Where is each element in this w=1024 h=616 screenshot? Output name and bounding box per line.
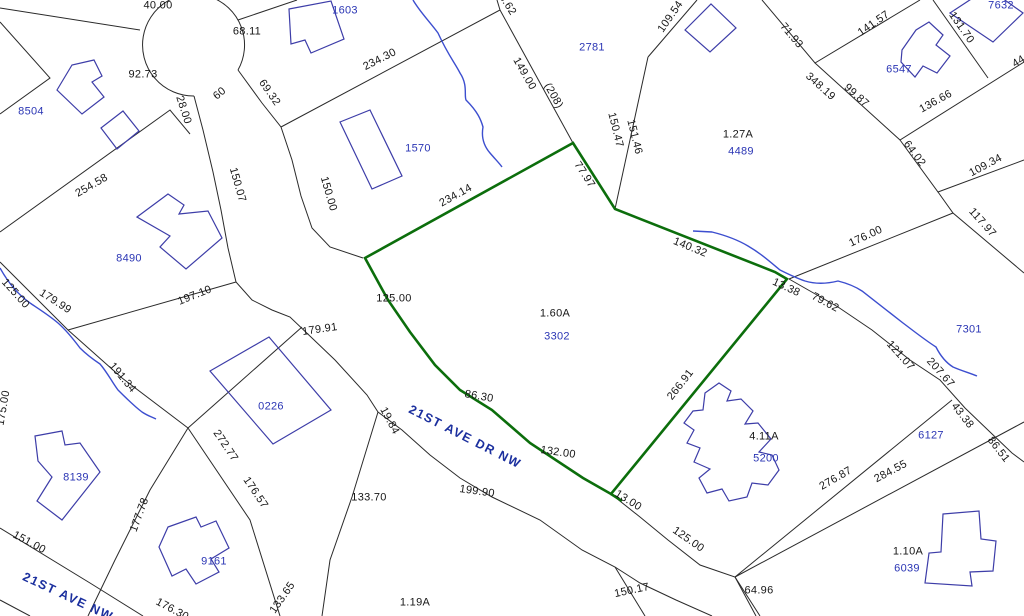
building-1570 xyxy=(340,110,402,189)
lot-line xyxy=(789,213,953,279)
map-canvas xyxy=(0,0,1024,616)
dimension-label: 133.70 xyxy=(351,493,386,504)
building-outbuilding xyxy=(685,4,736,52)
building-8504b xyxy=(101,111,139,149)
highlighted-parcel-3302[interactable] xyxy=(365,143,787,494)
lot-line xyxy=(0,22,50,114)
lot-line xyxy=(938,192,1024,273)
dimension-label: 1.19A xyxy=(400,598,430,609)
creek xyxy=(0,268,156,419)
dimension-label: 1.10A xyxy=(893,547,923,558)
road-east-edge xyxy=(238,70,363,258)
lot-lines xyxy=(0,0,1024,616)
dimension-label: 64.96 xyxy=(744,586,773,597)
dimension-label: 92.73 xyxy=(128,70,157,81)
plat-map: 40.0068.1192.736028.0069.32150.07254.582… xyxy=(0,0,1024,616)
lot-line xyxy=(322,412,378,616)
parcel-id-label[interactable]: 8139 xyxy=(63,473,89,484)
parcel-id-label[interactable]: 9161 xyxy=(201,557,227,568)
highlighted-parcel-group xyxy=(365,143,787,501)
dimension-label: 4.11A xyxy=(749,432,778,443)
lot-line xyxy=(735,422,1024,577)
dimension-label: 40.00 xyxy=(143,1,172,12)
dimension-label: 1.27A xyxy=(723,130,753,141)
lot-line xyxy=(0,8,140,30)
lot-line xyxy=(933,0,988,78)
parcel-id-label[interactable]: 6039 xyxy=(894,564,920,575)
lot-line xyxy=(735,577,756,616)
parcel-id-label[interactable]: 7301 xyxy=(956,325,982,336)
dimension-label: 125.00 xyxy=(376,294,411,305)
parcel-id-label[interactable]: 3302 xyxy=(544,332,570,343)
parcel-id-label[interactable]: 6547 xyxy=(886,65,912,76)
lot-line xyxy=(238,0,297,20)
lot-line xyxy=(815,62,1024,140)
lot-line xyxy=(0,262,188,428)
lot-line xyxy=(500,10,573,143)
building-0226 xyxy=(210,337,331,444)
building-8504 xyxy=(57,60,104,114)
parcel-id-label[interactable]: 8504 xyxy=(18,107,44,118)
lot-line xyxy=(0,110,190,232)
building-8490 xyxy=(137,194,222,269)
parcel-id-label[interactable]: 0226 xyxy=(258,402,284,413)
parcel-id-label[interactable]: 8490 xyxy=(116,254,142,265)
cul-de-sac xyxy=(143,0,245,96)
road-west-edge xyxy=(194,96,712,616)
parcel-id-label[interactable]: 1603 xyxy=(332,6,358,17)
road-sw-edge xyxy=(0,600,30,616)
parcel-id-label[interactable]: 7632 xyxy=(988,1,1014,12)
dimension-label: 1.60A xyxy=(540,309,570,320)
parcel-id-label[interactable]: 1570 xyxy=(405,144,431,155)
parcel-id-label[interactable]: 2781 xyxy=(579,43,605,54)
parcel-id-label[interactable]: 4489 xyxy=(728,147,754,158)
dimension-label: 68.11 xyxy=(233,27,261,38)
parcel-id-label[interactable]: 6127 xyxy=(918,431,944,442)
building-6039 xyxy=(925,511,996,586)
lot-line xyxy=(188,327,302,428)
parcel-id-label[interactable]: 5200 xyxy=(753,454,779,465)
building-9161 xyxy=(159,517,229,584)
lot-line xyxy=(281,0,500,127)
